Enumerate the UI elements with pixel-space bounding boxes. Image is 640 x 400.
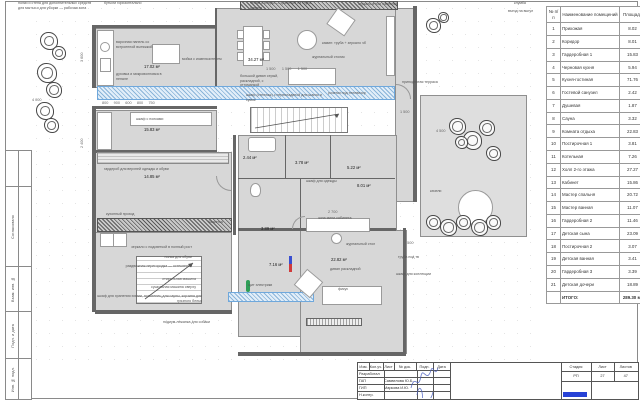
- col-header-area: Площадь: [620, 7, 640, 23]
- chair: [263, 30, 270, 39]
- room-area: 27.27: [620, 163, 640, 176]
- plan-label: 2 400: [80, 124, 85, 148]
- table-row: 21 Детская дочери 18.89: [547, 278, 640, 291]
- table-row: 8 Сауна 3.32: [547, 112, 640, 125]
- room-number: 8: [547, 112, 561, 125]
- plan-label: шкаф для одежды: [306, 179, 346, 184]
- table-row: 20 Гардеробная 3 3.39: [547, 266, 640, 279]
- room-name: Детская сына: [561, 227, 620, 240]
- room-area: 15.83: [620, 48, 640, 61]
- plan-label: 1 500: [404, 241, 428, 246]
- room-name: Детская дочери: [561, 278, 620, 291]
- room-name: Мастер ванная: [561, 202, 620, 215]
- tb-role: Н.контр.: [358, 391, 385, 399]
- tree-icon: [456, 215, 471, 230]
- room-area: 5.94: [620, 61, 640, 74]
- wall: [92, 25, 96, 88]
- plan-label: качели: [430, 189, 452, 194]
- table-row: 18 Постирочная 2 3.07: [547, 240, 640, 253]
- table-row: 6 Гостевой санузел 2.42: [547, 87, 640, 100]
- total-label: ИТОГО:: [561, 291, 620, 304]
- plan-label: шкаф для хранения химии, полотенец для с…: [96, 294, 202, 303]
- blue-accent-bar: [563, 392, 587, 397]
- room-number: 2: [547, 35, 561, 48]
- side-stamp-label: Инв. № подл.: [11, 367, 15, 392]
- plan-label: варочная панель со встроенной вытяжкой: [116, 40, 164, 49]
- plan-label: 800 900 600 800 750: [102, 101, 230, 106]
- plan-label: клумба: [514, 1, 544, 6]
- room-area: 15.86: [620, 176, 640, 189]
- table-row: 3 Гардеробная 1 15.83: [547, 48, 640, 61]
- side-stamp-empty: [18, 150, 32, 188]
- wall: [95, 310, 232, 314]
- room-area: 1.87: [620, 99, 640, 112]
- plan-label: 34.27 м²: [248, 57, 274, 62]
- room-number: 10: [547, 138, 561, 151]
- wardrobe-cabinet: [97, 112, 112, 150]
- wall: [95, 106, 217, 109]
- plan-label: полка для обуви: [120, 255, 192, 260]
- sink: [100, 42, 110, 52]
- room-name: Кухня-гостиная: [561, 74, 620, 87]
- room-number: 15: [547, 202, 561, 215]
- room-number: 16: [547, 214, 561, 227]
- plan-label: приподнятая терраса: [402, 80, 440, 85]
- plan-label: 17.02 м²: [144, 64, 170, 69]
- tb-logo-cell: [591, 381, 638, 399]
- table-row: 4 Черновая кухня 5.94: [547, 61, 640, 74]
- plan-label: банкетка: [208, 220, 234, 225]
- room-name: Кабинет: [561, 176, 620, 189]
- room-area: 3.07: [620, 240, 640, 253]
- plan-label: кухонный проход: [106, 212, 148, 217]
- tree-icon: [486, 146, 501, 161]
- room-area: 3.81: [620, 138, 640, 151]
- table-row: 9 Комната отдыха 22.83: [547, 125, 640, 138]
- chair: [237, 30, 244, 39]
- room-area: 11.46: [620, 214, 640, 227]
- room-name: Детская ванная: [561, 253, 620, 266]
- wall: [92, 106, 96, 312]
- side-stamp-empty: [18, 358, 32, 400]
- hob: [100, 58, 111, 72]
- room-area: 11.07: [620, 202, 640, 215]
- plan-label: подиум-лежанка для собаки: [112, 320, 210, 325]
- total-value: 289.30 м²: [620, 291, 640, 304]
- room-name: Коридор: [561, 35, 620, 48]
- side-stamp-empty: [18, 311, 32, 360]
- plan-label: камин: труба + зеркало чб: [322, 41, 374, 46]
- tree-icon: [44, 118, 59, 133]
- plan-label: зеркало в пол навесное: [358, 2, 400, 7]
- room-number: 14: [547, 189, 561, 202]
- room-number: 20: [547, 266, 561, 279]
- plan-label: зеркало с подсветкой в полный рост: [100, 245, 192, 250]
- table-row: 7 Душевая 1.87: [547, 99, 640, 112]
- wall: [215, 8, 217, 88]
- chair: [237, 52, 244, 61]
- total-empty: [547, 291, 561, 304]
- room-name: Черновая кухня: [561, 61, 620, 74]
- plan-label: въезд на выгул: [508, 9, 544, 14]
- plan-label: большой диван серый, раскладной, с оттом…: [240, 74, 280, 88]
- room-number: 18: [547, 240, 561, 253]
- room-name: Прихожая: [561, 23, 620, 36]
- tree-icon: [52, 46, 66, 60]
- glazing-band: [228, 292, 314, 302]
- room-name: Постирочная 2: [561, 240, 620, 253]
- table-row: 11 Котельная 7.26: [547, 151, 640, 164]
- room-number: 4: [547, 61, 561, 74]
- table-row: 12 Холл 2-го этажа 27.27: [547, 163, 640, 176]
- plan-label: 8.01 м²: [357, 183, 379, 188]
- stair-arrow: [251, 108, 347, 132]
- room-number: 9: [547, 125, 561, 138]
- plan-label: чехлы и пледы — хранение на глубь дивана: [250, 1, 312, 10]
- room-number: 19: [547, 253, 561, 266]
- signature-scribble: [408, 362, 442, 398]
- side-stamp-label: Подп. и дата: [11, 324, 15, 348]
- plan-label: диван раскладной: [330, 267, 376, 272]
- room-name: Душевая: [561, 99, 620, 112]
- room-area: 18.89: [620, 278, 640, 291]
- plan-label: 2.44 м²: [243, 155, 265, 160]
- room-name: Постирочная 1: [561, 138, 620, 151]
- plan-label: раздвижная перегородка — остекление: [100, 264, 192, 269]
- room-area: 8.02: [620, 23, 640, 36]
- room-name: Холл 2-го этажа: [561, 163, 620, 176]
- room-area: 71.76: [620, 74, 640, 87]
- room-number: 11: [547, 151, 561, 164]
- chair: [263, 41, 270, 50]
- toilet: [250, 183, 261, 197]
- tree-icon: [37, 63, 57, 83]
- table-row: 16 Гардеробная 2 11.46: [547, 214, 640, 227]
- partition: [330, 135, 331, 178]
- room-number: 17: [547, 227, 561, 240]
- plan-label: стиральная машина: [112, 277, 196, 282]
- wall: [403, 228, 406, 354]
- partition: [285, 135, 286, 178]
- tree-icon: [479, 120, 495, 136]
- tree-icon: [455, 136, 468, 149]
- room-name: Мастер спальня: [561, 189, 620, 202]
- bathtub: [248, 137, 276, 152]
- plan-label: шкаф с полками: [136, 117, 178, 122]
- plan-label: 3.78 м²: [295, 160, 317, 165]
- wall: [95, 25, 217, 28]
- plan-label: шкаф для коллекции: [396, 272, 444, 277]
- room-number: 6: [547, 87, 561, 100]
- room-number: 13: [547, 176, 561, 189]
- room-number: 5: [547, 74, 561, 87]
- room-number: 21: [547, 278, 561, 291]
- plan-label: гардероб для верхней одежды и обуви: [104, 167, 188, 172]
- room-name: Сауна: [561, 112, 620, 125]
- room-area: 22.83: [620, 125, 640, 138]
- room-number: 3: [547, 48, 561, 61]
- tv-console: [386, 16, 395, 76]
- room-name: Гостевой санузел: [561, 87, 620, 100]
- plan-label: журнальный столик: [312, 55, 352, 60]
- room-name: Гардеробная 3: [561, 266, 620, 279]
- room-area: 2.42: [620, 87, 640, 100]
- room-number: 7: [547, 99, 561, 112]
- plan-label: 1 500 1 500 1 500: [266, 67, 340, 72]
- table-row: 14 Мастер спальня 20.72: [547, 189, 640, 202]
- plan-label: щит электрики: [248, 283, 284, 288]
- plan-label: 22.82 м²: [331, 257, 357, 262]
- table-row: 19 Детская ванная 3.41: [547, 253, 640, 266]
- plan-label: труба под тв: [398, 255, 432, 260]
- plan-label: 14.85 м²: [144, 174, 170, 179]
- table-row: 5 Кухня-гостиная 71.76: [547, 74, 640, 87]
- room-name: Гардеробная 1: [561, 48, 620, 61]
- col-header-number: № п/п: [547, 7, 561, 23]
- room-number: 12: [547, 163, 561, 176]
- plan-label: 4 500: [436, 129, 464, 134]
- table-row: 10 Постирочная 1 3.81: [547, 138, 640, 151]
- room-area: 7.26: [620, 151, 640, 164]
- room-area: 3.39: [620, 266, 640, 279]
- room-area: 23.09: [620, 227, 640, 240]
- plan-label: 1 500: [400, 110, 424, 115]
- title-block: Изм. Кол.уч. Лист № док. Подп. Дата Разр…: [357, 362, 639, 400]
- stairs-upper: [250, 107, 348, 133]
- plan-label: журнальный стол: [346, 242, 388, 247]
- plan-label: 3.89 м²: [261, 226, 283, 231]
- room-name: Гардеробная 2: [561, 214, 620, 227]
- plan-label: полки и стена для дополнительных средств…: [18, 1, 96, 10]
- plan-label: бутыли горизонтально: [104, 1, 156, 6]
- shelf-rack: [97, 152, 229, 164]
- room-name: Котельная: [561, 151, 620, 164]
- plan-label: 2 700: [328, 210, 352, 215]
- wall: [238, 352, 406, 356]
- room-number: 1: [547, 23, 561, 36]
- tree-icon: [426, 215, 441, 230]
- side-stamp-empty: [18, 266, 32, 313]
- room-area: 3.32: [620, 112, 640, 125]
- plan-label: зона мини-кабинета: [318, 216, 368, 221]
- tb-project-name-cell: [450, 363, 562, 399]
- plan-label: мойка с измельчителем: [182, 57, 222, 62]
- plan-label: сушильная машина сверху: [104, 285, 196, 290]
- table-row: 15 Мастер ванная 11.07: [547, 202, 640, 215]
- table-row: 2 Коридор 8.01: [547, 35, 640, 48]
- plan-label: 5.22 м²: [347, 165, 369, 170]
- coffee-table: [297, 30, 317, 50]
- side-stamp-empty: [18, 186, 32, 268]
- plan-label: 4 000: [32, 98, 58, 103]
- table-total-row: ИТОГО: 289.30 м²: [547, 291, 640, 304]
- radiator: [306, 318, 362, 326]
- room-explication-table: № п/п Наименование помещений Площадь 1 П…: [546, 6, 638, 304]
- plan-label: духовка и микроволновка в пенале: [116, 72, 168, 81]
- plan-label: шкаф (стеллаж) с перекладиной для шапок …: [246, 93, 326, 102]
- desk-chair: [331, 233, 342, 244]
- room-name: Комната отдыха: [561, 125, 620, 138]
- table-row: 17 Детская сына 23.09: [547, 227, 640, 240]
- tree-icon: [486, 215, 501, 230]
- side-stamp-label: Взам. инв. №: [11, 277, 15, 302]
- room-area: 8.01: [620, 35, 640, 48]
- plan-label: 3 600: [80, 38, 85, 62]
- plan-label: фикус: [338, 287, 360, 292]
- tree-icon: [440, 219, 457, 236]
- tree-icon: [46, 82, 62, 98]
- room-area: 3.41: [620, 253, 640, 266]
- plan-label: 7.16 м²: [269, 262, 291, 267]
- plan-label: 15.83 м²: [144, 127, 170, 132]
- table-row: 1 Прихожая 8.02: [547, 23, 640, 36]
- tree-icon: [438, 12, 449, 23]
- col-header-name: Наименование помещений: [561, 7, 620, 23]
- room-area: 20.72: [620, 189, 640, 202]
- drawing-sheet: Согласовано Взам. инв. № Подп. и дата Ин…: [0, 0, 640, 400]
- table-row: 13 Кабинет 15.86: [547, 176, 640, 189]
- wall: [413, 6, 417, 202]
- plan-label: розетки под телевизор: [328, 91, 374, 96]
- chair: [237, 41, 244, 50]
- side-stamp-label: Согласовано: [11, 215, 15, 239]
